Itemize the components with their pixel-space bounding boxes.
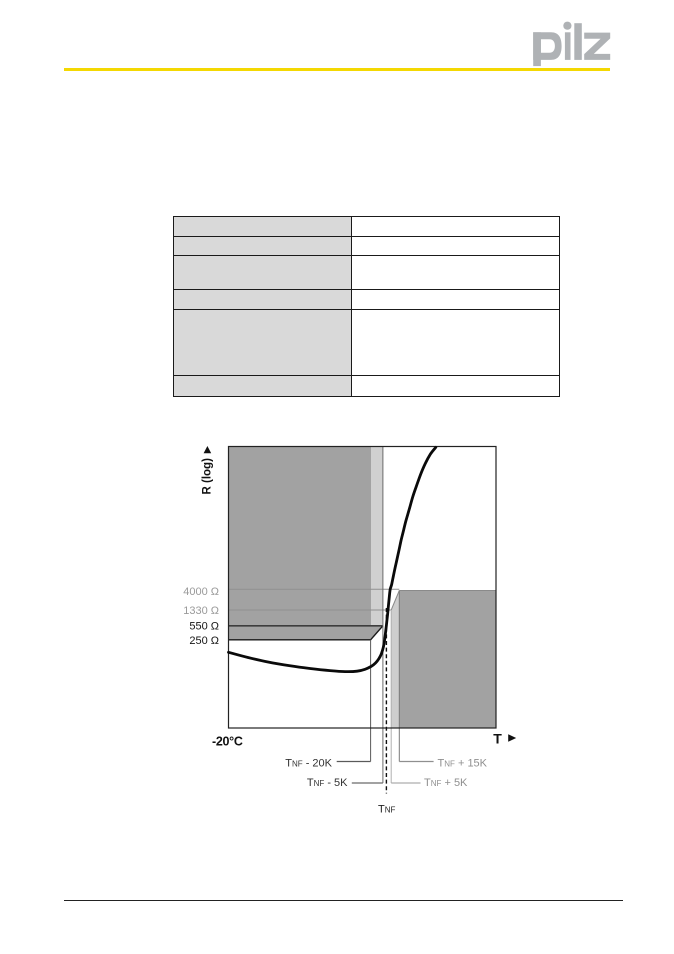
svg-text:250 Ω: 250 Ω bbox=[189, 635, 219, 647]
svg-text:TNF - 20K: TNF - 20K bbox=[285, 758, 332, 770]
svg-text:TNF + 5K: TNF + 5K bbox=[424, 777, 468, 789]
svg-text:4000 Ω: 4000 Ω bbox=[183, 586, 219, 598]
svg-text:TNF: TNF bbox=[378, 804, 396, 816]
svg-text:550 Ω: 550 Ω bbox=[189, 621, 219, 633]
svg-text:TNF - 5K: TNF - 5K bbox=[307, 777, 348, 789]
svg-text:R (log): R (log) bbox=[201, 458, 213, 495]
svg-text:-20°C: -20°C bbox=[212, 735, 243, 749]
svg-text:1330 Ω: 1330 Ω bbox=[183, 605, 219, 617]
svg-text:TNF + 15K: TNF + 15K bbox=[438, 758, 488, 770]
svg-text:T: T bbox=[493, 730, 502, 746]
